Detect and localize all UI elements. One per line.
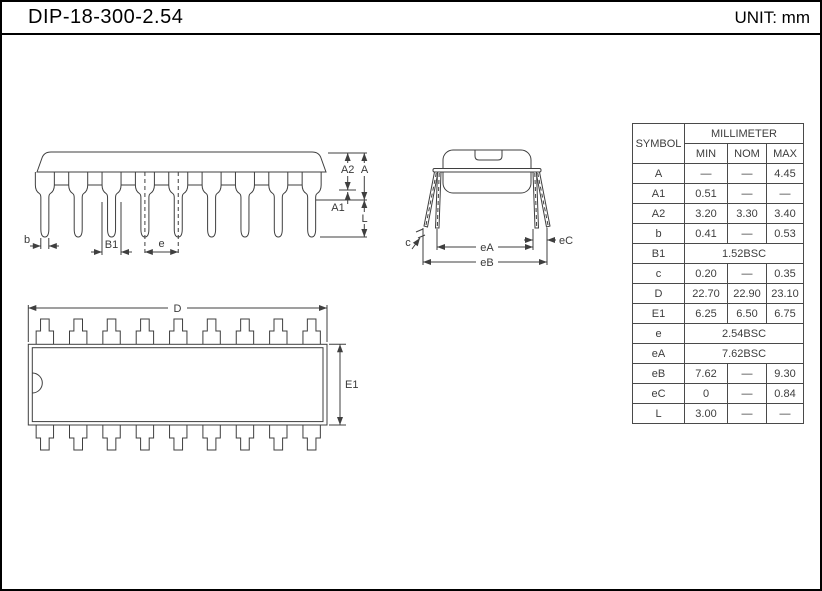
symbol-cell: A: [633, 164, 685, 184]
table-row: L3.00——: [633, 404, 804, 424]
basic-spacing-cell: 1.52BSC: [685, 244, 804, 264]
max-cell: 0.53: [767, 224, 804, 244]
dim-label-a1: A1: [331, 202, 344, 214]
datasheet-page: { "page": { "title": "DIP-18-300-2.54", …: [0, 0, 822, 591]
table-header-symbol: SYMBOL: [633, 124, 685, 164]
basic-spacing-cell: 2.54BSC: [685, 324, 804, 344]
table-row: A——4.45: [633, 164, 804, 184]
table-header-min: MIN: [685, 144, 728, 164]
symbol-cell: c: [633, 264, 685, 284]
symbol-cell: E1: [633, 304, 685, 324]
table-row: e2.54BSC: [633, 324, 804, 344]
dim-label-ea: eA: [480, 242, 494, 254]
nom-cell: —: [728, 404, 767, 424]
table-row: E16.256.506.75: [633, 304, 804, 324]
nom-cell: —: [728, 224, 767, 244]
symbol-cell: eC: [633, 384, 685, 404]
dim-label-a2: A2: [341, 164, 354, 176]
table-header-max: MAX: [767, 144, 804, 164]
nom-cell: —: [728, 384, 767, 404]
package-body-side: [37, 152, 326, 172]
min-cell: 3.00: [685, 404, 728, 424]
symbol-cell: A1: [633, 184, 685, 204]
symbol-cell: L: [633, 404, 685, 424]
basic-spacing-cell: 7.62BSC: [685, 344, 804, 364]
symbol-cell: B1: [633, 244, 685, 264]
min-cell: 7.62: [685, 364, 728, 384]
dim-label-e: e: [158, 238, 164, 250]
max-cell: 4.45: [767, 164, 804, 184]
page-title: DIP-18-300-2.54: [28, 6, 183, 29]
table-row: eC0—0.84: [633, 384, 804, 404]
symbol-cell: D: [633, 284, 685, 304]
table-header-millimeter: MILLIMETER: [685, 124, 804, 144]
min-cell: 0: [685, 384, 728, 404]
max-cell: 6.75: [767, 304, 804, 324]
nom-cell: 6.50: [728, 304, 767, 324]
dim-label-l: L: [361, 213, 367, 225]
dim-label-d: D: [174, 303, 182, 315]
max-cell: —: [767, 404, 804, 424]
symbol-cell: eA: [633, 344, 685, 364]
dim-label-b: b: [24, 234, 30, 246]
top-view-drawing: D E1: [15, 295, 375, 460]
min-cell: 3.20: [685, 204, 728, 224]
table-row: A23.203.303.40: [633, 204, 804, 224]
max-cell: —: [767, 184, 804, 204]
nom-cell: 3.30: [728, 204, 767, 224]
table-row: D22.7022.9023.10: [633, 284, 804, 304]
min-cell: 6.25: [685, 304, 728, 324]
nom-cell: —: [728, 264, 767, 284]
symbol-cell: b: [633, 224, 685, 244]
min-cell: 0.51: [685, 184, 728, 204]
symbol-cell: A2: [633, 204, 685, 224]
min-cell: —: [685, 164, 728, 184]
dim-label-eb: eB: [480, 257, 493, 269]
dimension-table: SYMBOL MILLIMETER MIN NOM MAX A——4.45A10…: [632, 123, 804, 424]
title-bar: DIP-18-300-2.54 UNIT: mm: [2, 2, 820, 35]
table-row: B11.52BSC: [633, 244, 804, 264]
max-cell: 0.35: [767, 264, 804, 284]
min-cell: 0.20: [685, 264, 728, 284]
nom-cell: —: [728, 184, 767, 204]
side-view-drawing: b B1 e A2 A A1 L: [15, 132, 371, 260]
table-row: A10.51——: [633, 184, 804, 204]
min-cell: 0.41: [685, 224, 728, 244]
lead-frame-bar: [433, 169, 541, 173]
nom-cell: —: [728, 364, 767, 384]
symbol-cell: eB: [633, 364, 685, 384]
unit-label: UNIT: mm: [734, 8, 810, 28]
table-row: eB7.62—9.30: [633, 364, 804, 384]
max-cell: 0.84: [767, 384, 804, 404]
table-row: b0.41—0.53: [633, 224, 804, 244]
table-header-nom: NOM: [728, 144, 767, 164]
dim-label-e1: E1: [345, 379, 358, 391]
package-body-top-outer: [28, 344, 327, 425]
nom-cell: —: [728, 164, 767, 184]
max-cell: 23.10: [767, 284, 804, 304]
table-row: c0.20—0.35: [633, 264, 804, 284]
min-cell: 22.70: [685, 284, 728, 304]
dim-label-c: c: [405, 237, 411, 249]
nom-cell: 22.90: [728, 284, 767, 304]
symbol-cell: e: [633, 324, 685, 344]
dim-label-a: A: [361, 164, 369, 176]
table-row: eA7.62BSC: [633, 344, 804, 364]
max-cell: 3.40: [767, 204, 804, 224]
dim-label-ec: eC: [559, 235, 573, 247]
max-cell: 9.30: [767, 364, 804, 384]
end-view-drawing: c eA eB eC: [400, 128, 580, 278]
dim-label-b1: B1: [105, 239, 118, 251]
